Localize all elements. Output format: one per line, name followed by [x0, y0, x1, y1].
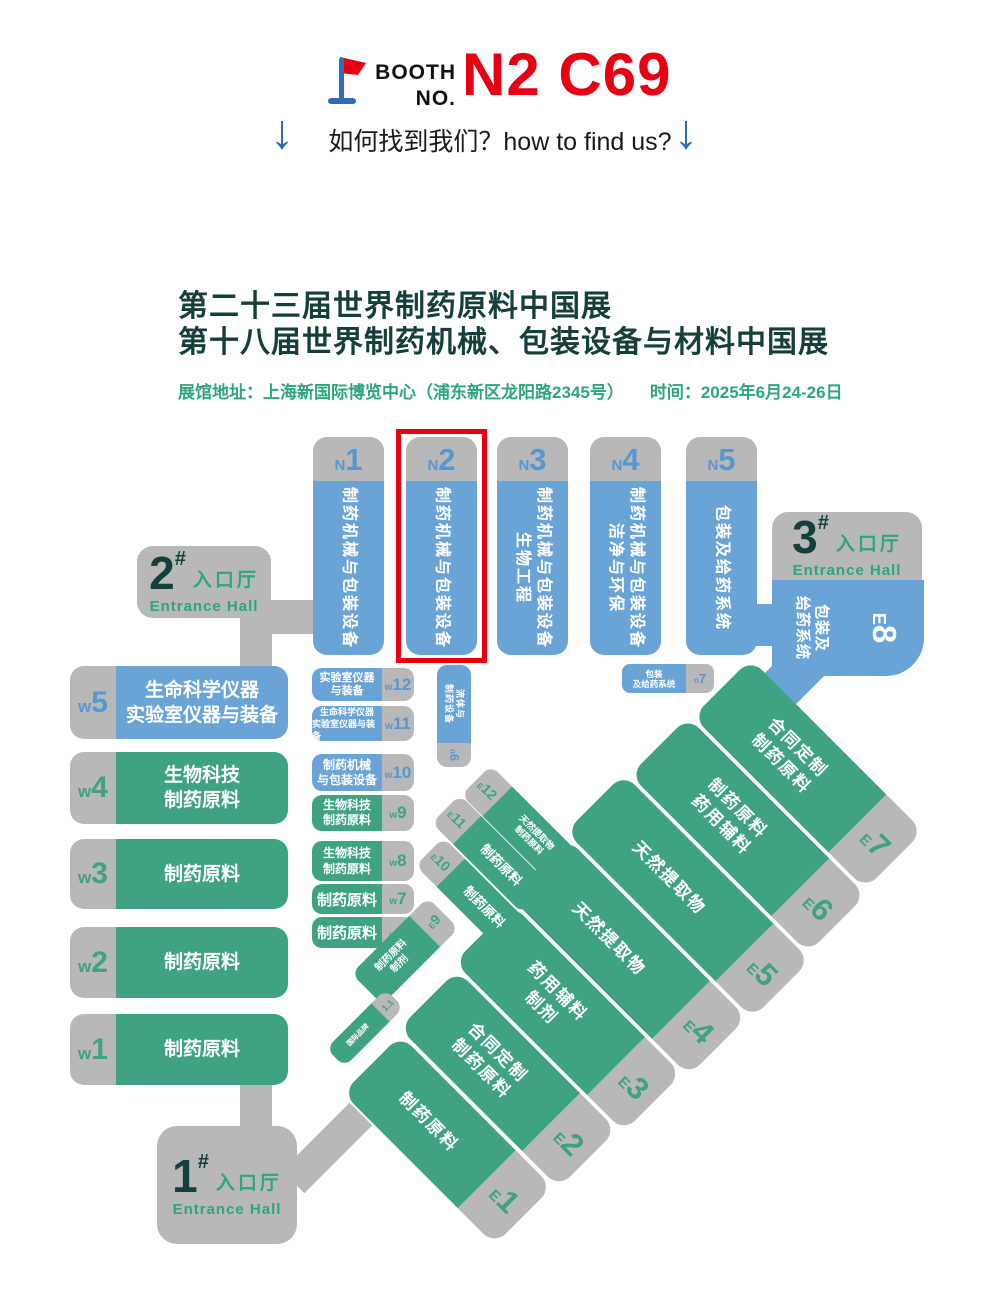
hall-w10: 制药机械与包装设备 w10	[312, 754, 414, 791]
hall-e2-label: E2	[549, 1120, 590, 1161]
entrance-hall-1: 1#入口厅 Entrance Hall	[157, 1126, 297, 1244]
hall-w8: 生物科技制药原料 w8	[312, 841, 414, 881]
venue-text: 展馆地址：上海新国际博览中心（浦东新区龙阳路2345号）	[178, 383, 624, 402]
hall-w8-label: w8	[389, 852, 406, 870]
hall-e1-label: E1	[485, 1177, 526, 1218]
booth-label-line1: BOOTH	[372, 60, 456, 86]
entrance-hall-2: 2#入口厅 Entrance Hall	[137, 546, 271, 618]
hall-e1-1-label: 1.1	[380, 998, 395, 1013]
hall-e4-label: E4	[679, 1008, 720, 1049]
hall-n3-text: 制药机械与包装设备生物工程	[512, 484, 554, 652]
hall-w2-text: 制药原料	[116, 927, 288, 998]
hall-w3-label: w3	[78, 859, 108, 889]
hall-w10-text: 制药机械与包装设备	[312, 754, 382, 791]
hall-n5-text: 包装及给药系统	[711, 484, 732, 652]
hall-w12: 实验室仪器与装备 w12	[312, 668, 414, 701]
booth-label: BOOTH NO.	[372, 60, 456, 112]
hall-n5: N5 包装及给药系统	[686, 437, 757, 655]
hall-e8-text: 包装及给药系统	[793, 584, 831, 672]
hall-w1-label: w1	[78, 1035, 108, 1065]
booth-number: N2 C69	[462, 40, 671, 109]
find-us-text: 如何找到我们？how to find us?	[0, 122, 1000, 158]
hall-w4: w4 生物科技制药原料	[70, 752, 288, 824]
hall-w7: 制药原料 w7	[312, 884, 414, 914]
hall-w9-text: 生物科技制药原料	[312, 795, 382, 831]
hall-e8: 包装及给药系统 E8	[772, 580, 924, 676]
hall-w5-text: 生命科学仪器实验室仪器与装备	[116, 666, 288, 739]
hall-w2: w2 制药原料	[70, 927, 288, 998]
hall-w6-text: 制药原料	[312, 917, 382, 948]
hall-w9-label: w9	[389, 804, 406, 822]
hall-w4-text: 生物科技制药原料	[116, 752, 288, 824]
hall-w5: w5 生命科学仪器实验室仪器与装备	[70, 666, 288, 739]
hall-w4-label: w4	[78, 773, 108, 803]
flag-icon	[326, 53, 368, 107]
hall-n4: N4 制药机械与包装设备洁净与环保	[590, 437, 661, 655]
hall-e9-label: E9	[424, 912, 445, 933]
hall-n6: 流体与制药设备 n6	[437, 665, 471, 767]
hall-w11: 生命科学仪器实验室仪器与装备 w11	[312, 706, 414, 741]
hall-n1: N1 制药机械与包装设备	[313, 437, 384, 655]
hall-e3-label: E3	[614, 1064, 655, 1105]
hall-w8-text: 生物科技制药原料	[312, 841, 382, 881]
hall-n7: 包装及给药系统 n7	[622, 664, 714, 693]
hall-w11-text: 生命科学仪器实验室仪器与装备	[312, 706, 382, 741]
hall-n3: N3 制药机械与包装设备生物工程	[497, 437, 568, 655]
hall-e6-label: E6	[798, 885, 839, 926]
hall-w3-text: 制药原料	[116, 839, 288, 909]
hall-n4-label: N4	[611, 444, 639, 475]
hall-e5-label: E5	[742, 950, 783, 991]
hall-w12-text: 实验室仪器与装备	[312, 668, 382, 701]
hall-n7-text: 包装及给药系统	[622, 664, 686, 693]
hall-n6-label: n6	[446, 749, 462, 761]
hall-w9: 生物科技制药原料 w9	[312, 795, 414, 831]
hall-w10-label: w10	[385, 764, 412, 782]
hall-w2-label: w2	[78, 948, 108, 978]
hall-n4-text: 制药机械与包装设备洁净与环保	[605, 484, 647, 652]
time-text: 时间：2025年6月24-26日	[650, 383, 843, 402]
hall-e8-label: E8	[865, 613, 903, 643]
hall-w12-label: w12	[385, 676, 412, 694]
hall-n3-label: N3	[518, 444, 546, 475]
hall-w1-text: 制药原料	[116, 1014, 288, 1085]
poster: BOOTH NO. N2 C69 ↓ ↓ 如何找到我们？how to find …	[0, 0, 1000, 1302]
booth-label-line2: NO.	[372, 86, 456, 112]
hall-e7-label: E7	[855, 821, 896, 862]
entrance-hall-3: 3#入口厅 Entrance Hall	[772, 512, 922, 580]
hall-w5-label: w5	[78, 688, 108, 718]
hall-e11-label: E11	[444, 807, 470, 833]
hall-w11-label: w11	[385, 715, 411, 733]
booth-hall-highlight	[396, 429, 487, 663]
hall-w7-text: 制药原料	[312, 884, 382, 914]
hall-n7-label: n7	[694, 671, 706, 687]
expo-title-line2: 第十八届世界制药机械、包装设备与材料中国展	[178, 317, 829, 361]
connector-entrance2-w5	[240, 612, 272, 670]
hall-n1-label: N1	[334, 444, 362, 475]
hall-n6-text: 流体与制药设备	[443, 665, 465, 743]
hall-e12-label: E12	[474, 778, 500, 804]
hall-n5-label: N5	[707, 444, 735, 475]
hall-n1-text: 制药机械与包装设备	[338, 484, 359, 652]
hall-w1: w1 制药原料	[70, 1014, 288, 1085]
hall-w3: w3 制药原料	[70, 839, 288, 909]
hall-e10-label: E10	[427, 849, 453, 875]
hall-w7-label: w7	[389, 890, 406, 908]
venue-and-time: 展馆地址：上海新国际博览中心（浦东新区龙阳路2345号）时间：2025年6月24…	[178, 378, 843, 403]
